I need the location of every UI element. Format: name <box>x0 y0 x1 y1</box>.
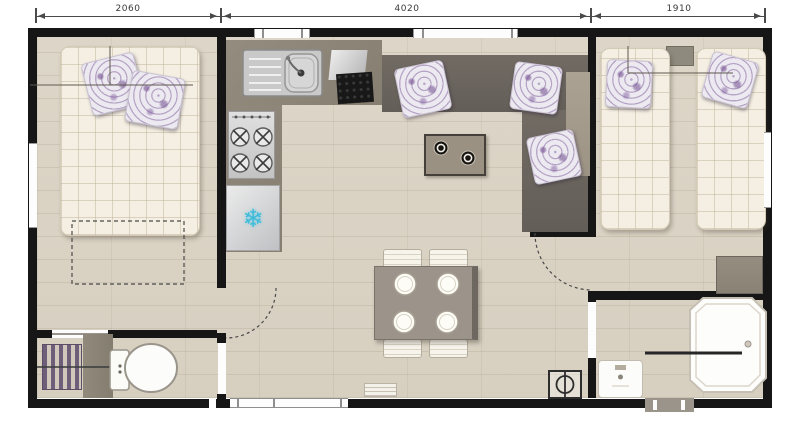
dimension-label-bedroom1: 2060 <box>90 4 166 14</box>
dimension-arrow <box>754 13 761 19</box>
dimension-line <box>35 16 766 17</box>
wall-bedroom1-kitchen <box>217 37 226 288</box>
dining-chair <box>383 339 422 358</box>
dimension-tick <box>764 8 766 23</box>
hob-mat <box>336 72 374 104</box>
nightstand <box>666 46 694 66</box>
fridge: ❄ <box>226 185 280 251</box>
dimension-tick <box>35 8 37 23</box>
window-mullion <box>273 398 275 408</box>
radiator <box>42 344 82 390</box>
dimension-arrow <box>594 13 601 19</box>
dimension-arrow <box>224 13 231 19</box>
pillow <box>605 59 653 109</box>
pillow <box>509 61 563 115</box>
french-window <box>230 398 348 408</box>
floorplan-canvas: 2060 4020 1910 ❄ <box>0 0 800 429</box>
window-mullion <box>237 398 239 408</box>
dimension-label-living: 4020 <box>369 4 445 14</box>
entry-mat <box>364 383 397 397</box>
dimension-label-bedroom2: 1910 <box>641 4 717 14</box>
window-mullion <box>301 29 303 38</box>
pillow <box>124 70 186 131</box>
exterior-step-tread <box>653 400 657 410</box>
dimension-tick <box>220 8 222 23</box>
bottom-wall-vent <box>209 398 216 408</box>
window-left-bedroom1 <box>29 143 37 228</box>
window-mullion <box>262 29 264 38</box>
washbasin <box>598 360 643 398</box>
dining-chair <box>429 339 468 358</box>
window-mullion <box>511 29 513 38</box>
window-right-bedroom2 <box>764 132 771 208</box>
wc-door <box>218 340 226 397</box>
dimension-arrow <box>38 13 45 19</box>
window-mullion <box>340 398 342 408</box>
coffee-table <box>424 134 486 176</box>
wardrobe <box>716 256 763 294</box>
window-mullion <box>422 29 424 38</box>
freezer-snowflake-icon: ❄ <box>227 186 279 250</box>
dining-table <box>374 266 478 340</box>
pillow <box>393 59 452 118</box>
wc-cabinet <box>83 334 113 398</box>
gas-stove <box>228 111 275 179</box>
dimension-arrow <box>580 13 587 19</box>
dimension-arrow <box>210 13 217 19</box>
window-top-living <box>413 29 518 38</box>
exterior-step-tread <box>681 400 685 410</box>
shower-room-door <box>588 299 596 361</box>
pillow <box>526 129 583 186</box>
dimension-tick <box>590 8 592 23</box>
